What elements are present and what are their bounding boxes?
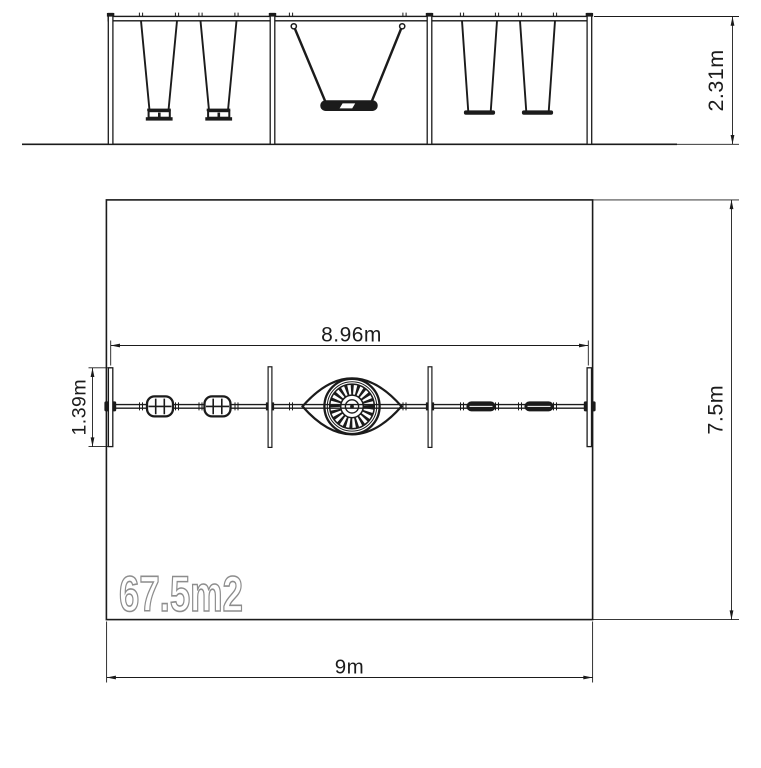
plan-bucket-seat-1 xyxy=(147,396,173,416)
plan-flat-seat-1 xyxy=(466,401,495,411)
plan-mid-frame-1 xyxy=(268,367,272,448)
post-cap xyxy=(269,13,276,17)
dimension-label: 9m xyxy=(335,656,364,679)
nest-swing xyxy=(291,24,405,111)
frame-post xyxy=(108,14,113,145)
flat-seat xyxy=(464,110,495,114)
drawing-page: 2.31m 67.5m2 xyxy=(0,0,761,768)
area-label: 67.5m2 xyxy=(119,566,243,622)
plan-nest-swing xyxy=(303,378,402,434)
arrowhead-up xyxy=(731,17,735,26)
arrowhead-down xyxy=(730,610,734,619)
bucket-swing-1 xyxy=(141,21,177,121)
arrowhead-left xyxy=(111,344,120,348)
swing-ropes xyxy=(141,21,177,111)
bucket-swing-2 xyxy=(201,21,237,121)
arrowhead-up xyxy=(91,368,95,377)
seat-base xyxy=(146,117,173,120)
plan-end-frame-left xyxy=(108,368,112,447)
top-beam xyxy=(108,16,591,20)
flat-seat xyxy=(522,110,553,114)
arrowhead-right xyxy=(579,344,588,348)
rope-hook xyxy=(400,24,405,29)
seat-base xyxy=(205,117,232,120)
arrowhead-down xyxy=(91,437,95,446)
dimension-zone-width: 9m xyxy=(107,622,593,683)
arrowhead-left xyxy=(107,676,116,680)
post-cap xyxy=(586,13,593,17)
seat-divider xyxy=(158,113,161,118)
swing-ropes xyxy=(462,21,497,111)
plan-end-frame-right xyxy=(587,368,591,447)
frame-post xyxy=(427,14,432,145)
rope-hook xyxy=(291,24,296,29)
plan-beam xyxy=(111,405,589,409)
plan-flat-seat-2 xyxy=(524,401,553,411)
dimension-height: 2.31m xyxy=(594,17,739,145)
safety-zone-outline xyxy=(106,200,592,620)
dimension-label: 1.39m xyxy=(69,379,91,436)
frame-post xyxy=(270,14,275,145)
dimension-structure-width: 8.96m xyxy=(111,324,589,366)
dimension-label: 2.31m xyxy=(704,49,728,111)
plan-bucket-seat-2 xyxy=(205,396,231,416)
arrowhead-right xyxy=(583,676,592,680)
arrowhead-down xyxy=(731,135,735,144)
plan-view: 67.5m2 xyxy=(69,200,740,683)
flat-swing-1 xyxy=(462,21,497,115)
post-cap xyxy=(426,13,433,17)
post-cap xyxy=(107,13,114,17)
plan-mid-frame-2 xyxy=(428,367,432,448)
dimension-label: 8.96m xyxy=(321,324,382,347)
swing-ropes xyxy=(520,21,555,111)
seat-divider xyxy=(218,113,221,118)
swing-ropes xyxy=(201,21,237,111)
dimension-label: 7.5m xyxy=(704,385,728,435)
elevation-view: 2.31m xyxy=(22,13,739,145)
arrowhead-up xyxy=(730,200,734,209)
frame-post xyxy=(587,14,592,145)
dimension-zone-depth: 7.5m xyxy=(593,200,739,620)
flat-swing-2 xyxy=(520,21,555,115)
nest-ropes xyxy=(295,29,401,103)
swing-set-technical-drawing: 2.31m 67.5m2 xyxy=(0,0,761,768)
